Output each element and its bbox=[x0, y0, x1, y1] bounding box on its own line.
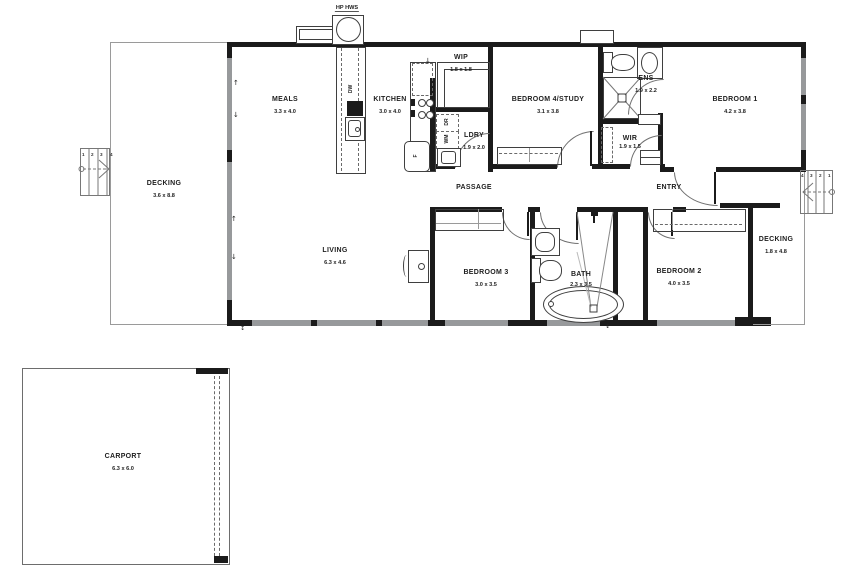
room-label-bed2: BEDROOM 24.0 x 3.5 bbox=[656, 268, 701, 288]
window-segment bbox=[445, 320, 508, 326]
window-segment bbox=[382, 320, 428, 326]
ac-unit-inner bbox=[299, 29, 334, 40]
bed2-robe-rail bbox=[655, 224, 742, 225]
floor-plan: HP HWS DW F ↓ DR WM bbox=[0, 0, 864, 580]
door-arc-bed3 bbox=[502, 212, 530, 240]
level-marker-icon: ↕ bbox=[605, 324, 610, 330]
ens-shelf bbox=[638, 114, 661, 125]
wall-segment bbox=[227, 150, 232, 162]
wir-shelf-2 bbox=[640, 157, 661, 165]
stove-burner-2 bbox=[426, 99, 434, 107]
dishwasher-label: DW bbox=[348, 85, 354, 93]
room-label-bed1: BEDROOM 14.2 x 3.8 bbox=[712, 96, 757, 116]
deck-left-top bbox=[110, 42, 228, 43]
step-number: 4 bbox=[801, 174, 804, 179]
door-leaf-bed4 bbox=[590, 131, 592, 166]
plan-linework bbox=[478, 209, 479, 229]
fridge-label: F bbox=[413, 154, 419, 157]
window-segment bbox=[657, 320, 735, 326]
door-leaf-entry bbox=[714, 172, 716, 204]
room-label-living: LIVING6.3 x 4.6 bbox=[322, 247, 347, 267]
stove-burner-4 bbox=[426, 111, 434, 119]
room-label-ens: ENS1.9 x 2.2 bbox=[635, 75, 657, 95]
fireplace-hearth bbox=[403, 255, 410, 277]
wall-segment bbox=[227, 47, 232, 58]
room-label-ldry: LDRY1.9 x 2.0 bbox=[463, 132, 485, 152]
wir-shelf-left bbox=[601, 127, 613, 163]
wall-segment bbox=[592, 164, 630, 169]
carport-door-track-1 bbox=[214, 371, 215, 561]
stove-burner-1 bbox=[418, 99, 426, 107]
deck-left-bottom bbox=[110, 324, 228, 325]
room-label-decking-right: DECKING1.8 x 4.8 bbox=[759, 236, 793, 256]
plan-linework bbox=[672, 209, 673, 230]
room-label-decking-left: DECKING3.6 x 8.8 bbox=[147, 180, 181, 200]
step-down-arrow-icon: ↓ bbox=[425, 58, 431, 65]
plan-linework bbox=[529, 148, 530, 162]
bed3-robe bbox=[435, 209, 504, 231]
fireplace-flue bbox=[418, 263, 425, 270]
room-label-passage: PASSAGE bbox=[456, 184, 492, 191]
step-number: 2 bbox=[91, 153, 94, 158]
wall-segment bbox=[716, 167, 806, 172]
window-segment bbox=[801, 104, 806, 150]
window-segment bbox=[227, 58, 232, 150]
ens-basin bbox=[641, 52, 658, 74]
wall-segment bbox=[748, 205, 753, 326]
bed2-robe bbox=[653, 209, 746, 232]
bath-basin bbox=[535, 232, 555, 252]
slider-arrow-down-icon: ↓ bbox=[231, 254, 237, 261]
door-leaf-bed3 bbox=[527, 212, 529, 236]
bathtub-tap bbox=[548, 301, 554, 307]
meter-box bbox=[580, 30, 614, 44]
bath-shower bbox=[577, 212, 613, 324]
window-segment bbox=[227, 162, 232, 300]
wall-segment bbox=[508, 320, 547, 326]
carport-post-bottom bbox=[214, 556, 228, 563]
door-arc-bed4 bbox=[557, 131, 594, 168]
room-label-entry: ENTRY bbox=[657, 184, 682, 191]
washing-machine-label: WM bbox=[444, 135, 450, 144]
wall-segment bbox=[801, 47, 806, 58]
step-number: 1 bbox=[82, 153, 85, 158]
hws-tank bbox=[336, 17, 361, 42]
step-number: 2 bbox=[819, 174, 822, 179]
island-sink-unit bbox=[347, 101, 363, 116]
level-marker-icon: ↕ bbox=[240, 326, 245, 332]
bath-toilet-bowl bbox=[539, 260, 562, 281]
wall-segment bbox=[801, 95, 806, 104]
kitchen-tap bbox=[355, 127, 360, 132]
room-label-bath: BATH2.3 x 3.5 bbox=[570, 271, 592, 289]
room-label-carport: CARPORT6.3 x 6.0 bbox=[105, 453, 142, 473]
deck-right-bottom bbox=[753, 324, 805, 325]
room-label-bed4: BEDROOM 4/STUDY3.1 x 3.8 bbox=[512, 96, 585, 116]
step-number: 3 bbox=[810, 174, 813, 179]
room-label-kitchen: KITCHEN3.0 x 4.0 bbox=[373, 96, 406, 116]
laundry-tub-bowl bbox=[441, 151, 456, 164]
island-dash-left bbox=[341, 48, 342, 171]
room-label-wir: WIR1.9 x 1.5 bbox=[619, 135, 641, 151]
plan-linework bbox=[436, 223, 501, 224]
wall-segment bbox=[665, 167, 674, 172]
step-number: 4 bbox=[110, 153, 113, 158]
dryer-label: DR bbox=[444, 118, 450, 125]
slider-arrow-down-icon: ↓ bbox=[233, 112, 239, 119]
room-label-bed3: BEDROOM 33.0 x 3.5 bbox=[463, 269, 508, 289]
window-segment bbox=[252, 320, 311, 326]
carport-door-track-2 bbox=[219, 371, 220, 561]
stove-knob-2 bbox=[411, 110, 415, 117]
room-label-wip: WIP1.8 x 1.8 bbox=[450, 54, 472, 74]
pantry-overhead bbox=[412, 63, 433, 96]
carport-post-top bbox=[196, 368, 228, 374]
ens-toilet-bowl bbox=[611, 54, 635, 71]
step-number: 3 bbox=[100, 153, 103, 158]
wall-segment bbox=[643, 207, 648, 326]
slider-arrow-up-icon: ↑ bbox=[233, 80, 239, 87]
window-segment bbox=[317, 320, 376, 326]
window-segment bbox=[801, 58, 806, 95]
bed4-robe-rail bbox=[499, 153, 558, 154]
wip-bench-inner bbox=[444, 69, 490, 108]
room-label-meals: MEALS3.3 x 4.0 bbox=[272, 96, 298, 116]
step-number: 1 bbox=[828, 174, 831, 179]
stove-knob-1 bbox=[411, 99, 415, 106]
hws-label: HP HWS bbox=[335, 5, 359, 12]
slider-arrow-up-icon: ↑ bbox=[231, 216, 237, 223]
stove-burner-3 bbox=[418, 111, 426, 119]
